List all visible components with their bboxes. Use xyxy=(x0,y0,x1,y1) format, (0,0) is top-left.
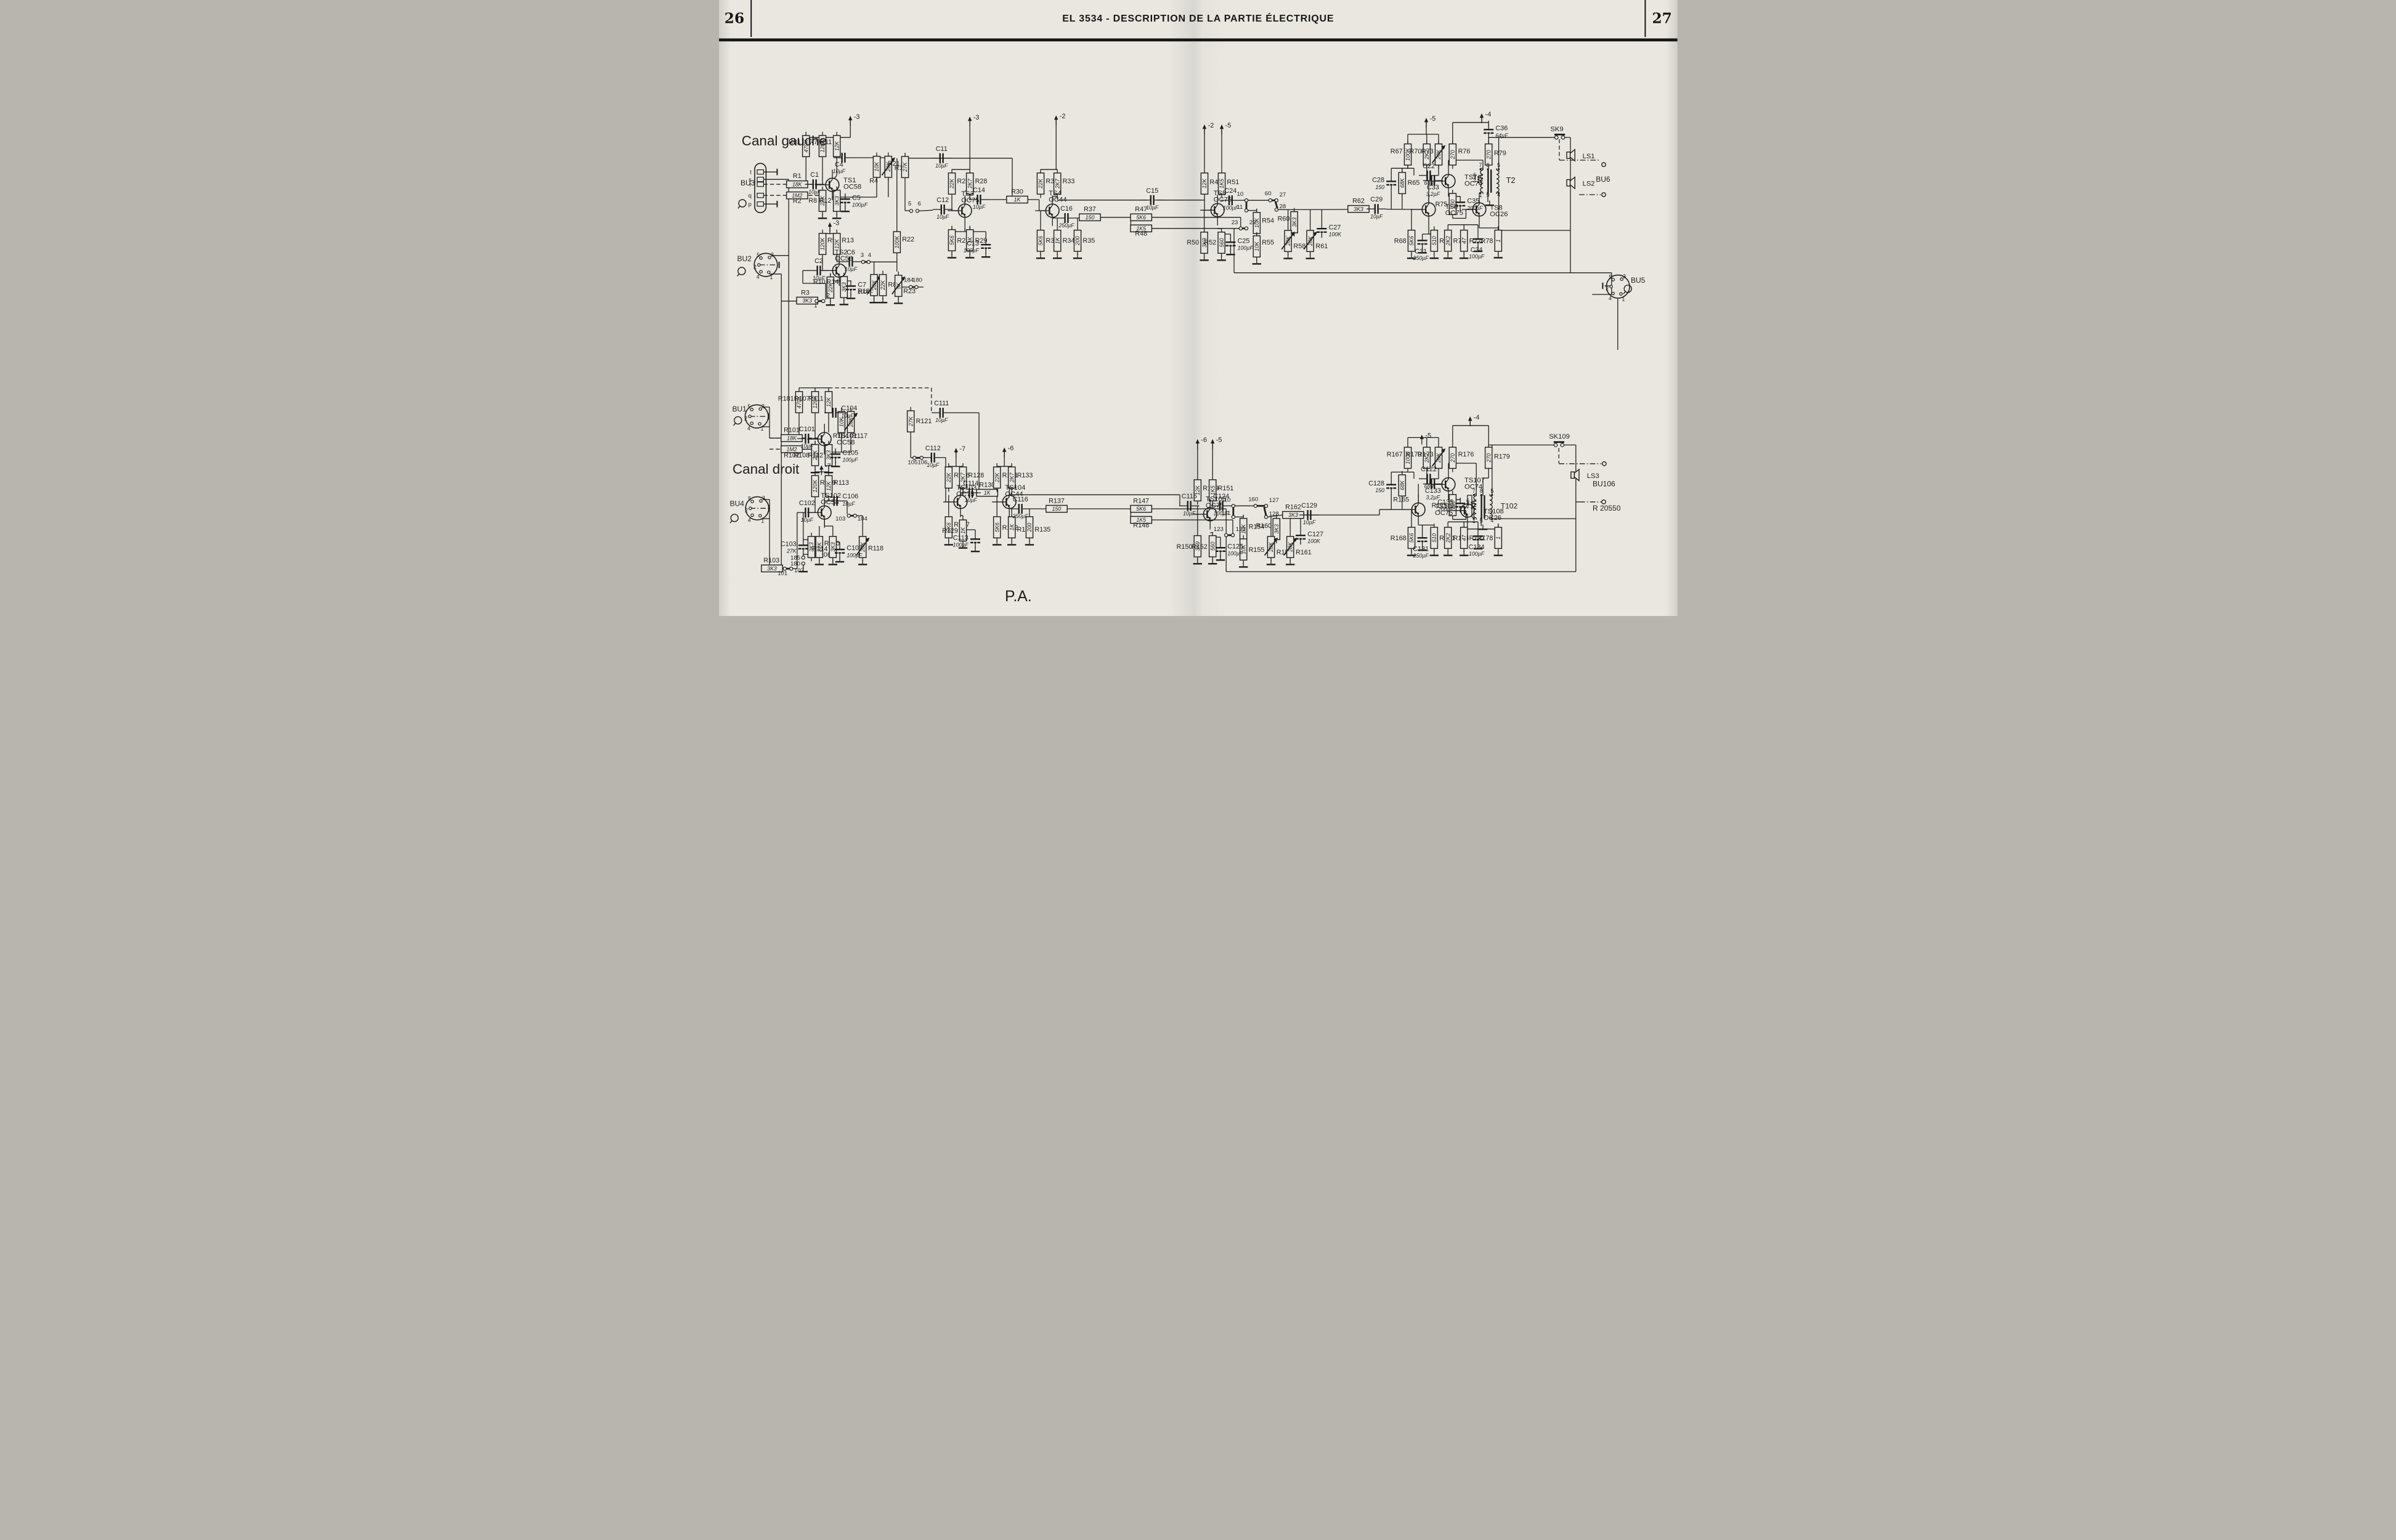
cap-plate xyxy=(1480,539,1483,540)
ground-symbol xyxy=(1036,257,1044,259)
resistor-value: 3K3 xyxy=(1273,524,1280,534)
supply-label: -3 xyxy=(833,220,839,227)
ground-symbol xyxy=(832,217,841,219)
cap-value: 64µF xyxy=(1495,132,1508,139)
resistor-value: 22K xyxy=(946,472,952,483)
resistor-ref: R60 xyxy=(1277,215,1289,222)
cap-plate xyxy=(835,408,836,418)
cap-plate xyxy=(835,549,845,550)
cap-value: 100µF xyxy=(1227,551,1243,557)
cap-value: 10µF xyxy=(842,501,855,507)
xfmr-pin-number: 9 xyxy=(1479,518,1482,524)
resistor-value: 5K6 xyxy=(1408,236,1415,246)
resistor-value: 1K xyxy=(960,527,966,534)
transistor-type: OC75 xyxy=(956,491,974,498)
resistor-value: 12K xyxy=(834,140,840,151)
contact-point xyxy=(1269,199,1272,202)
ground-symbol xyxy=(1493,257,1502,258)
contact-point xyxy=(1264,505,1267,508)
cap-plate xyxy=(1429,171,1431,180)
cap-value: 100K xyxy=(1328,232,1342,238)
transistor-type: OC75 xyxy=(1435,509,1453,517)
cap-plate xyxy=(985,248,987,249)
contact-point xyxy=(914,285,917,288)
text-label: LS2 xyxy=(1582,180,1594,188)
cap-ref: C11 xyxy=(935,145,947,153)
ground-symbol xyxy=(944,544,952,545)
cap-plate xyxy=(830,453,840,455)
cap-plate xyxy=(1153,195,1154,205)
resistor-value: 27K xyxy=(908,416,914,427)
din-pin xyxy=(767,271,770,274)
supply-label: -4 xyxy=(1473,414,1479,421)
resistor-value: 270 xyxy=(1450,453,1456,463)
speaker-coil xyxy=(1570,472,1574,478)
cap-plate xyxy=(1484,132,1487,134)
cap-ref: C103 xyxy=(780,540,796,548)
resistor-value: 5K6 xyxy=(994,522,1000,532)
resistor-ref: R129 xyxy=(942,527,958,535)
cap-plate xyxy=(1299,538,1302,540)
resistor-ref: R50 xyxy=(1187,239,1199,246)
din-pin-number: 1 xyxy=(760,426,763,432)
cap-plate xyxy=(1477,539,1479,540)
ground-symbol xyxy=(1407,257,1415,259)
cap-plate xyxy=(1386,184,1389,185)
resistor-value: 10K xyxy=(1254,241,1260,251)
resistor-value: 510 xyxy=(1431,533,1437,543)
cap-plate xyxy=(1296,535,1306,536)
resistor-ref: R47 xyxy=(1135,206,1147,213)
supply-label: -7 xyxy=(959,445,965,453)
resistor-value: 150 xyxy=(1085,214,1094,221)
contact-number: 3 xyxy=(860,252,863,259)
resistor-ref: R62 xyxy=(1352,198,1365,205)
cap-plate xyxy=(1222,551,1225,552)
cap-value: 10µF xyxy=(1146,205,1159,211)
cap-plate xyxy=(847,202,850,203)
cap-plate xyxy=(844,153,845,163)
ground-symbol xyxy=(810,472,819,473)
resistor-value: 10K xyxy=(874,161,880,172)
cap-plate xyxy=(1424,541,1427,542)
resistor-ref: R52 xyxy=(1204,239,1216,246)
cap-plate xyxy=(1219,551,1222,552)
resistor-ref: R61 xyxy=(1315,243,1328,250)
din-pin xyxy=(1609,285,1612,288)
cap-plate xyxy=(970,542,973,543)
text-label: Canal droit xyxy=(733,461,800,477)
resistor-ref: R113 xyxy=(834,479,849,487)
contact-point xyxy=(1239,227,1242,230)
arrowhead xyxy=(1468,416,1472,421)
resistor-value: 3K3 xyxy=(1291,217,1297,227)
resistor-ref: R68 xyxy=(1394,237,1406,245)
contact-number: 6 xyxy=(917,201,920,208)
contact-number: 180 xyxy=(790,561,800,567)
cap-value: 10µF xyxy=(935,163,948,169)
speaker-coil xyxy=(1567,152,1570,158)
din-pin-number: 1 xyxy=(1622,296,1625,302)
cap-plate xyxy=(1417,537,1427,538)
contact-point xyxy=(1254,505,1257,508)
cap-value: 100µF xyxy=(1237,245,1253,251)
din-pin-number: 5 xyxy=(1609,274,1612,280)
contact-number: 103 xyxy=(835,516,845,522)
resistor-value: 68K xyxy=(1399,177,1405,188)
cap-plate xyxy=(1232,245,1235,246)
cap-value: 100µF xyxy=(952,542,969,548)
ground-symbol xyxy=(894,302,903,304)
cap-ref: C125 xyxy=(1227,543,1243,550)
resistor-ref: R147 xyxy=(1133,497,1149,505)
cap-ref: C36 xyxy=(1495,125,1508,132)
cap-value: 100µF xyxy=(858,289,874,295)
xfmr-pin xyxy=(1487,168,1488,170)
cap-plate xyxy=(798,548,801,549)
text-label: SK109 xyxy=(1549,433,1570,440)
cap-ref: C27 xyxy=(1328,224,1341,231)
cap-plate xyxy=(1317,228,1326,229)
core-bar xyxy=(1480,495,1482,519)
cap-plate xyxy=(846,289,849,290)
cap-value: 10µF xyxy=(808,188,821,195)
din-pin-number: 3 xyxy=(761,495,765,501)
transistor-type: OC75 xyxy=(961,197,979,204)
xfmr-pin-number: 1 xyxy=(1479,192,1482,198)
cap-plate xyxy=(1455,503,1465,504)
cap-value: 10µF xyxy=(936,214,949,220)
cap-ref: C5 xyxy=(852,194,861,201)
supply-label: -3 xyxy=(973,114,979,121)
din-pin-number: 5 xyxy=(748,495,751,501)
resistor-value: 1K xyxy=(1013,197,1021,203)
resistor-value: 3K3 xyxy=(826,450,832,460)
cap-plate xyxy=(842,552,845,553)
resistor-ref: R179 xyxy=(1494,453,1510,460)
cap-plate xyxy=(981,248,984,249)
cap-plate xyxy=(1216,547,1225,548)
ground-symbol xyxy=(1460,257,1468,259)
resistor-value: 2K2 xyxy=(1445,236,1451,246)
ground-symbol xyxy=(826,304,834,306)
arrowhead xyxy=(968,116,972,121)
xfmr-pin-number: 7 xyxy=(1472,488,1475,494)
resistor-ref: R30 xyxy=(1011,188,1023,195)
resistor-value: 68K xyxy=(1399,480,1405,490)
cap-plate xyxy=(1390,184,1392,185)
resistor-ref: R1 xyxy=(792,172,801,180)
resistor-ref: R76 xyxy=(1458,148,1470,155)
resistor-ref: R167 xyxy=(1386,451,1402,458)
din-pin-number: 4 xyxy=(756,274,759,280)
resistor-ref: R35 xyxy=(1082,237,1095,245)
resistor-value: 3K3 xyxy=(1288,512,1298,518)
speaker-coil xyxy=(1567,180,1570,186)
xfmr-pin xyxy=(1471,501,1472,503)
text-label: Canal gauche xyxy=(741,133,826,148)
ground-symbol xyxy=(818,217,826,219)
ground-symbol xyxy=(1493,554,1502,556)
xfmr-pin-number: 9 xyxy=(1486,192,1489,198)
cap-plate xyxy=(1190,501,1191,511)
cap-plate xyxy=(1417,243,1420,245)
cap-plate xyxy=(1302,538,1306,540)
contact-point xyxy=(1275,199,1278,202)
text-label: T2 xyxy=(1506,176,1515,185)
contact-number: 4 xyxy=(867,252,871,259)
contact-point xyxy=(821,299,824,302)
resistor-value: 1 xyxy=(1495,239,1501,242)
din-pin xyxy=(748,415,750,418)
cap-plate xyxy=(850,289,852,290)
resistor-value: 120K xyxy=(812,479,818,493)
transistor-type: OC58 xyxy=(821,498,839,506)
contact-point xyxy=(1264,516,1267,519)
resistor-value: 560 xyxy=(1209,541,1216,551)
cap-plate xyxy=(1386,180,1396,182)
cap-value: 10µF xyxy=(927,462,940,468)
cap-value: 10µF xyxy=(812,275,825,281)
resistor-ref: R168 xyxy=(1390,535,1406,542)
resistor-ref: R13 xyxy=(842,237,854,245)
resistor-value: 18K xyxy=(792,181,802,187)
cap-value: 3,2µF xyxy=(1426,191,1440,197)
switch-contact xyxy=(1561,136,1565,139)
cap-plate xyxy=(830,457,834,458)
text-label: BU5 xyxy=(1631,276,1646,285)
resistor-value: 12K xyxy=(1201,178,1208,188)
ground-symbol xyxy=(947,257,956,258)
resistor-ref: R67 xyxy=(1390,148,1402,155)
resistor-ref: R148 xyxy=(1133,522,1149,529)
ground-symbol xyxy=(1239,566,1248,567)
text-label: BU2 xyxy=(737,254,752,263)
resistor-ref: R160 xyxy=(1256,522,1272,530)
resistor-ref: R21 xyxy=(887,160,900,168)
arrowhead xyxy=(1424,118,1427,122)
resistor-value: 560 xyxy=(1218,238,1224,248)
resistor-ref: R37 xyxy=(1084,206,1096,213)
cap-ref: C29 xyxy=(1370,196,1383,203)
cap-ref: C34 xyxy=(1470,246,1482,254)
switch-blade xyxy=(1275,201,1277,208)
cap-ref: C22 xyxy=(1423,163,1435,170)
din-pin xyxy=(749,507,751,509)
arrowhead xyxy=(819,465,823,469)
switch-contact xyxy=(1554,444,1557,447)
ground-symbol xyxy=(798,571,807,572)
speaker-cone xyxy=(1574,469,1579,480)
open-terminal xyxy=(1601,193,1605,197)
text-label: T102 xyxy=(1500,502,1517,511)
resistor-ref: R3 xyxy=(801,289,810,296)
contact-number: 160 xyxy=(1248,496,1258,503)
text-label: BU3 xyxy=(741,179,755,187)
cap-plate xyxy=(1229,245,1232,246)
supply-label: -5 xyxy=(1425,432,1431,439)
ground-symbol xyxy=(840,211,849,212)
cap-value: 10µF xyxy=(832,168,845,174)
ground-symbol xyxy=(1460,554,1468,556)
din-pin-number: 2 xyxy=(744,415,747,421)
resistor-ref: R28 xyxy=(975,178,987,185)
ground-symbol xyxy=(824,472,832,473)
cap-plate xyxy=(837,457,840,458)
arrowhead xyxy=(1219,124,1223,129)
ground-symbol xyxy=(1073,257,1081,259)
cap-plate xyxy=(1480,241,1483,243)
resistor-value: 2K7 xyxy=(1054,178,1060,189)
cap-ref: C104 xyxy=(841,405,857,412)
transistor-type: OC44 xyxy=(1005,491,1023,498)
resistor-ref: R103 xyxy=(763,557,779,564)
cap-ref: C14 xyxy=(973,187,985,194)
resistor-value: 3K3 xyxy=(830,542,836,552)
cap-plate xyxy=(840,198,850,200)
core-bar xyxy=(1490,169,1492,193)
supply-label: -6 xyxy=(1201,437,1207,444)
resistor-value: 22K xyxy=(949,178,955,189)
resistor-ref: R65 xyxy=(1407,179,1419,187)
cap-plate xyxy=(805,548,808,549)
ground-symbol xyxy=(981,256,990,257)
xfmr-pin xyxy=(1471,507,1472,509)
contact-point xyxy=(802,562,805,565)
ground-symbol xyxy=(993,544,1001,545)
cap-value: 10µF xyxy=(841,413,854,419)
xfmr-pin-number: 1 xyxy=(1472,518,1475,524)
cap-plate xyxy=(1393,487,1396,488)
cap-value: 100µF xyxy=(847,552,863,558)
bu3-pin xyxy=(757,170,763,174)
din-pin xyxy=(750,422,753,424)
contact-number: 180 xyxy=(912,277,922,284)
cap-plate xyxy=(1390,487,1392,488)
ground-symbol xyxy=(1444,554,1452,556)
cap-ref: C106 xyxy=(842,493,858,500)
cap-ref: C122 xyxy=(1421,466,1437,473)
contact-number: 101 xyxy=(778,570,787,577)
cap-value: 100µF xyxy=(963,248,979,254)
cap-ref: C4 xyxy=(834,161,843,168)
cap-plate xyxy=(835,552,838,553)
cap-plate xyxy=(840,202,843,203)
cap-plate xyxy=(1393,184,1396,185)
supply-label: -6 xyxy=(1007,445,1013,452)
resistor-ref: R79 xyxy=(1494,150,1506,157)
resistor-ref: R112 xyxy=(808,452,823,459)
contact-number: 10 xyxy=(1237,191,1243,198)
cap-value: 250µF xyxy=(1058,222,1074,229)
cap-value: 10µF xyxy=(1370,213,1383,219)
din-pin xyxy=(750,514,753,516)
cap-plate xyxy=(943,205,944,214)
secondary-coil xyxy=(1496,170,1499,192)
terminal-bar xyxy=(768,413,769,419)
cap-value: 27K xyxy=(786,548,797,554)
resistor-ref: R34 xyxy=(1062,237,1074,245)
cap-plate xyxy=(1473,535,1483,537)
contact-point xyxy=(1245,199,1248,202)
text-label: LS3 xyxy=(1586,472,1599,480)
resistor-ref: R165 xyxy=(1393,496,1409,503)
cap-plate xyxy=(977,542,980,543)
cap-plate xyxy=(1473,241,1476,243)
resistor-ref: R48 xyxy=(1135,230,1147,237)
cap-value: 10µF xyxy=(800,517,813,523)
contact-point xyxy=(1275,208,1278,211)
cap-plate xyxy=(988,248,991,249)
cap-plate xyxy=(1484,129,1493,130)
cap-value: 200µF xyxy=(1466,205,1483,211)
din-pin-number: 1 xyxy=(761,517,764,524)
resistor-ref: R114 xyxy=(812,545,827,553)
transistor-type: OC58 xyxy=(837,439,855,447)
arrowhead xyxy=(848,116,852,120)
resistor-ref: R107 xyxy=(794,395,810,402)
contact-point xyxy=(1245,209,1248,212)
contact-point xyxy=(853,514,856,517)
switch-contact xyxy=(1561,444,1564,447)
cap-plate xyxy=(1421,243,1423,245)
cap-value: 150 xyxy=(1375,184,1384,190)
xfmr-pin-number: 4 xyxy=(1497,192,1500,198)
cap-value: 100µF xyxy=(1469,551,1485,557)
resistor-ref: R155 xyxy=(1248,546,1264,554)
resistor-ref: R22 xyxy=(902,236,914,243)
resistor-ref: R137 xyxy=(1049,497,1065,505)
cap-ref: C107 xyxy=(847,545,863,552)
ground-symbol xyxy=(1053,257,1062,259)
xfmr-pin-number: 8 xyxy=(1479,488,1482,494)
resistor-value: 22K xyxy=(880,280,886,291)
resistor-ref: R55 xyxy=(1262,239,1274,246)
bu3-pin xyxy=(757,193,763,198)
ground-symbol xyxy=(1193,563,1201,564)
din-pin-number: 2 xyxy=(753,264,756,270)
resistor-value: 47 xyxy=(1461,237,1467,244)
bu3-pin xyxy=(757,202,763,206)
resistor-ref: R173 xyxy=(1417,451,1433,458)
ground-symbol xyxy=(846,298,855,299)
xfmr-pin xyxy=(1477,176,1479,178)
contact-number: 105 xyxy=(908,460,917,466)
resistor-value: 5K6 xyxy=(949,235,955,245)
resistor-value: 22K xyxy=(1038,178,1044,189)
contact-number: 123 xyxy=(1213,526,1223,533)
wire xyxy=(733,423,735,426)
arrowhead xyxy=(954,448,957,452)
resistor-value: 1 xyxy=(1495,537,1501,540)
resistor-ref: R51 xyxy=(1227,179,1239,186)
resistor-value: 47 xyxy=(1461,534,1467,541)
cap-plate xyxy=(1424,243,1427,245)
cap-ref: C105 xyxy=(842,449,858,456)
resistor-value: 1K xyxy=(1009,523,1015,530)
collector-lead xyxy=(1446,166,1448,179)
cap-ref: C28 xyxy=(1372,177,1384,184)
cap-ref: C2 xyxy=(814,257,823,265)
cap-ref: C33 xyxy=(1426,184,1439,192)
xfmr-pin-number: 2 xyxy=(1472,177,1476,184)
supply-label: -2 xyxy=(1208,122,1214,129)
contact-point xyxy=(1232,516,1235,519)
switch-contact xyxy=(1554,136,1558,139)
cap-ref: C115 xyxy=(1181,493,1196,500)
cap-value: 100µF xyxy=(852,202,868,208)
ground-symbol xyxy=(814,564,823,565)
